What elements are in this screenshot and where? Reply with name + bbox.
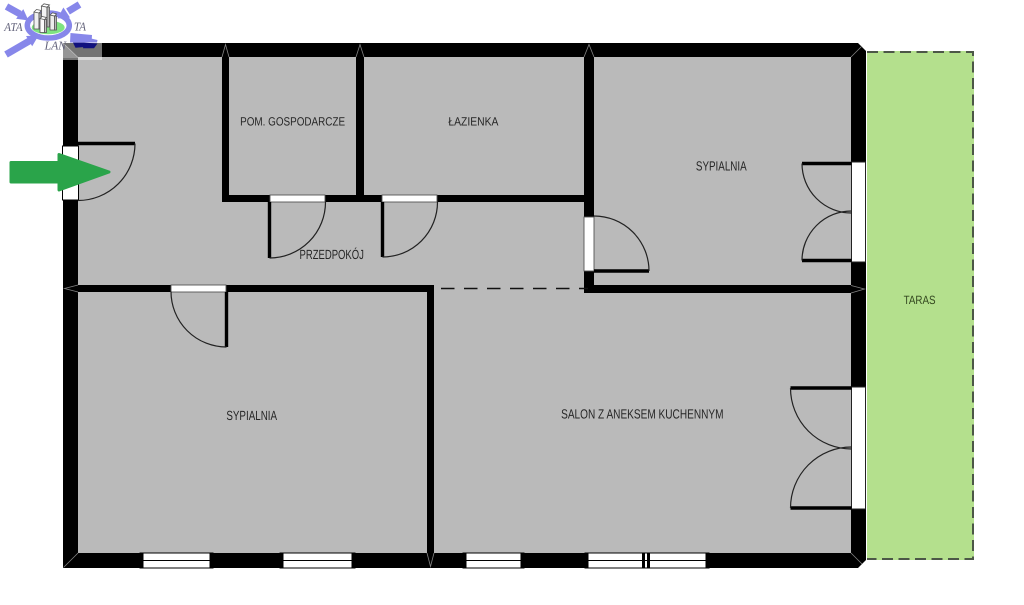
svg-text:TARAS: TARAS <box>904 293 936 307</box>
svg-text:LAN: LAN <box>44 38 67 52</box>
svg-text:TA: TA <box>74 20 87 34</box>
svg-text:SYPIALNIA: SYPIALNIA <box>696 159 747 174</box>
svg-text:SYPIALNIA: SYPIALNIA <box>226 408 277 423</box>
svg-text:PRZEDPOKÓJ: PRZEDPOKÓJ <box>300 247 364 262</box>
svg-text:ATA: ATA <box>3 20 23 34</box>
svg-text:POM. GOSPODARCZE: POM. GOSPODARCZE <box>240 115 345 129</box>
svg-text:SALON Z ANEKSEM KUCHENNYM: SALON Z ANEKSEM KUCHENNYM <box>561 407 723 422</box>
svg-text:ŁAZIENKA: ŁAZIENKA <box>448 115 498 129</box>
